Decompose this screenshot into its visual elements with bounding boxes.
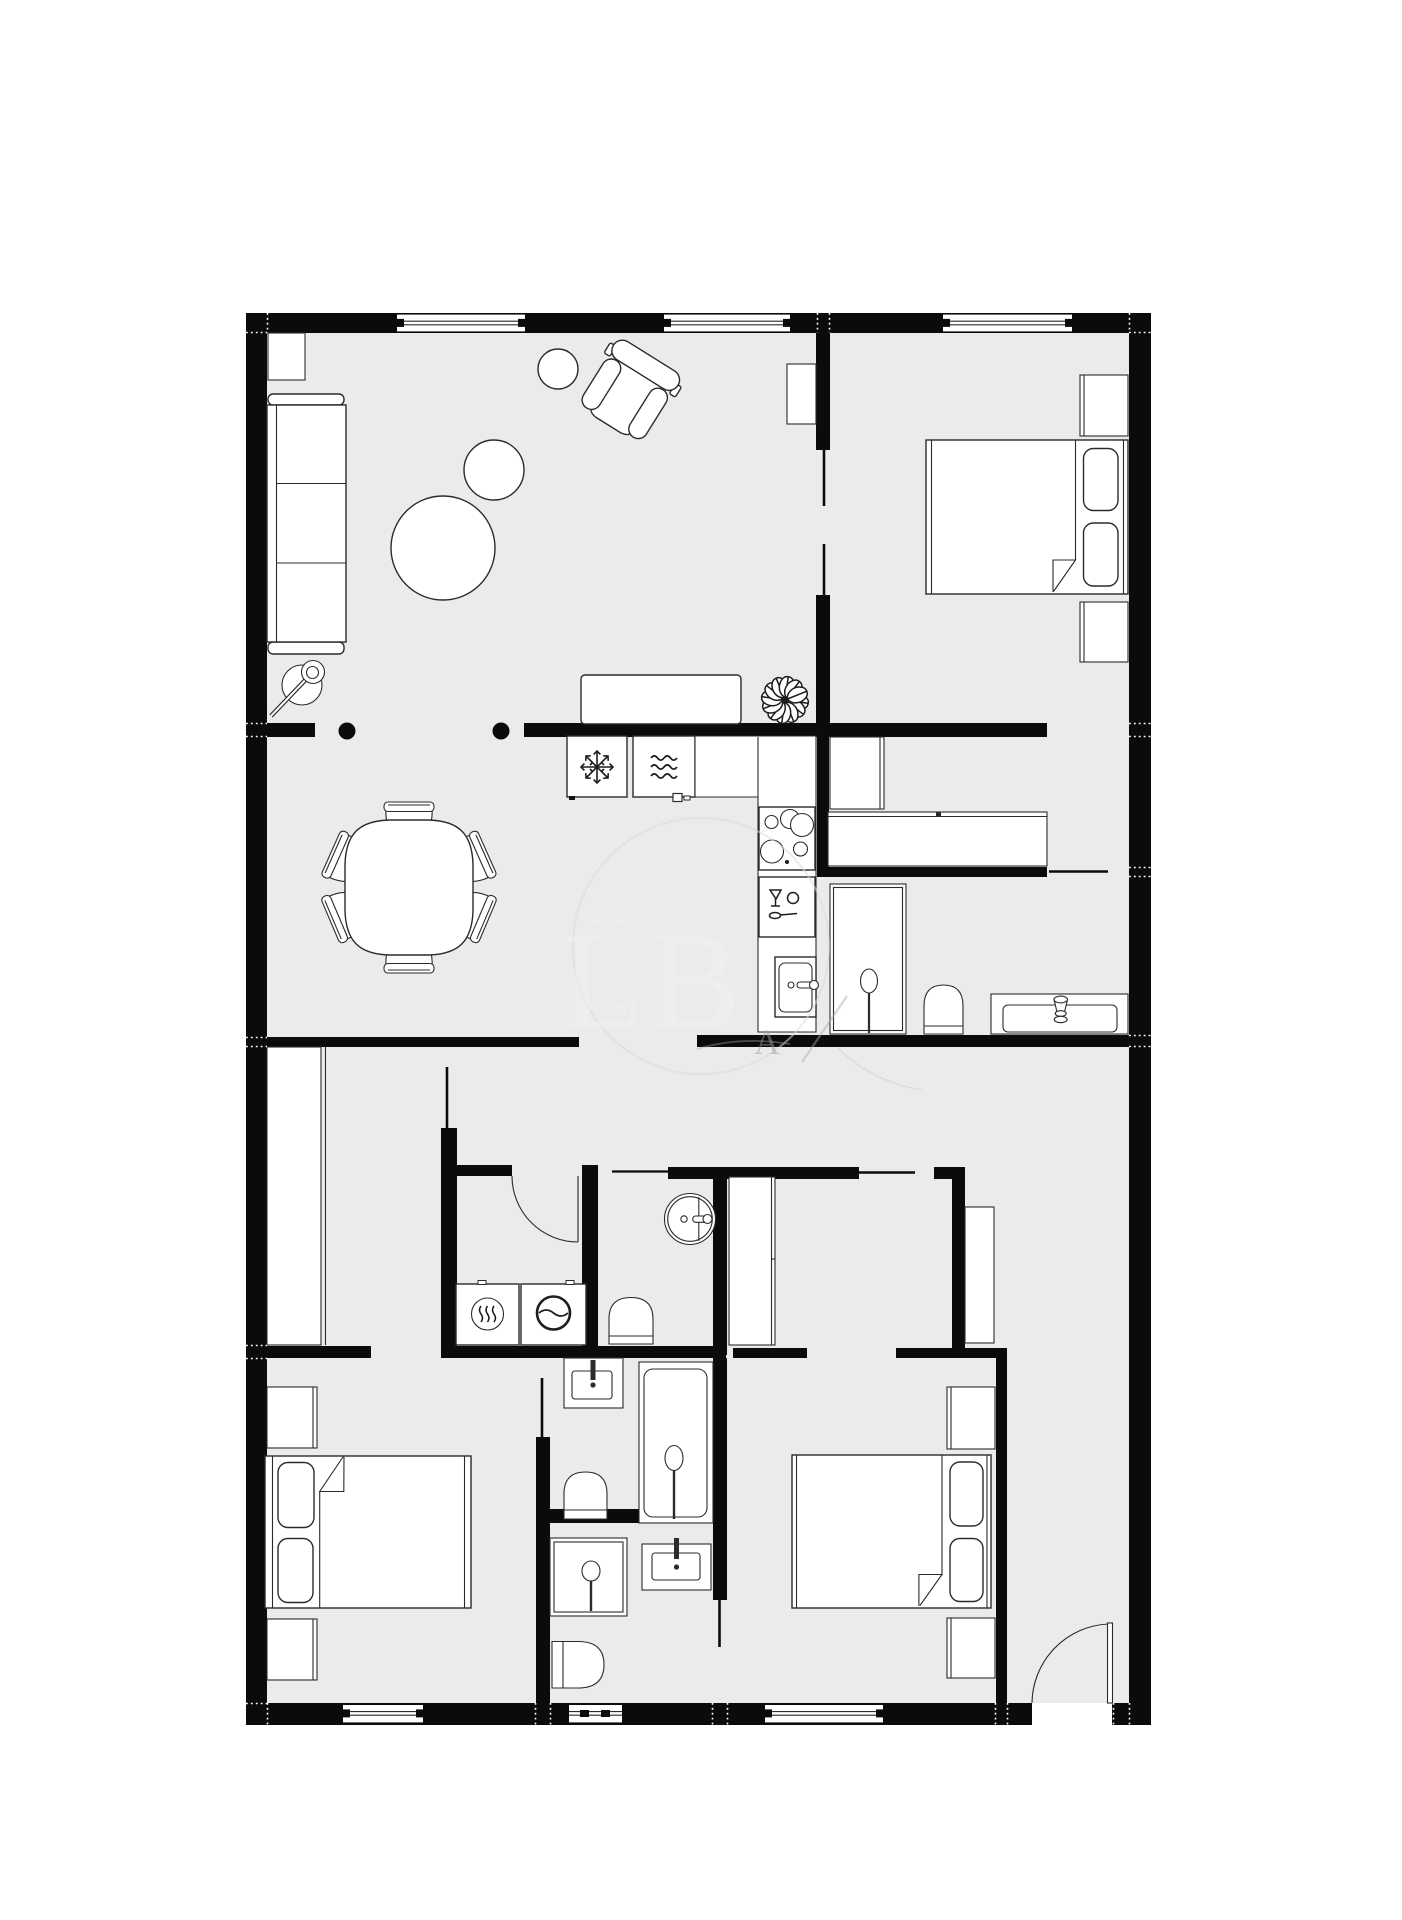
svg-text:I: I bbox=[585, 886, 632, 1041]
svg-text:B: B bbox=[648, 904, 741, 1059]
